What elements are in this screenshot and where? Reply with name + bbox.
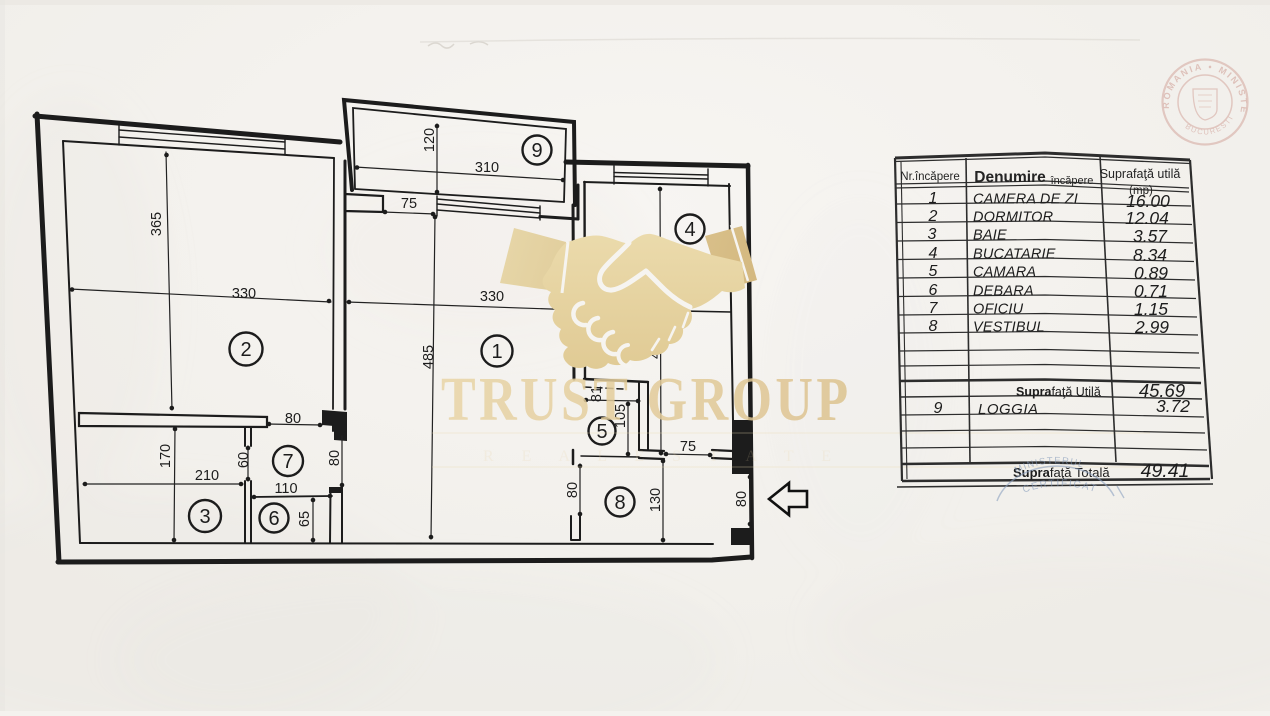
svg-text:310: 310	[475, 160, 499, 176]
svg-text:60: 60	[236, 452, 252, 468]
svg-text:3: 3	[928, 226, 937, 243]
svg-text:CAMERA DE ZI: CAMERA DE ZI	[973, 192, 1078, 208]
svg-text:încăpere: încăpere	[1050, 175, 1094, 187]
svg-text:2: 2	[240, 339, 251, 361]
svg-text:330: 330	[480, 289, 504, 305]
svg-text:3: 3	[199, 506, 210, 528]
svg-text:TRUST GROUP: TRUST GROUP	[441, 366, 852, 434]
svg-text:VESTIBUL: VESTIBUL	[973, 320, 1045, 336]
svg-text:0.71: 0.71	[1134, 281, 1168, 301]
svg-text:170: 170	[158, 444, 174, 468]
svg-text:2: 2	[928, 208, 938, 225]
svg-text:OFICIU: OFICIU	[973, 302, 1024, 318]
svg-text:9: 9	[531, 140, 542, 162]
svg-text:485: 485	[421, 345, 437, 369]
svg-text:210: 210	[195, 468, 219, 484]
svg-text:2.99: 2.99	[1134, 317, 1169, 337]
svg-text:DORMITOR: DORMITOR	[973, 210, 1054, 226]
svg-text:1: 1	[929, 190, 938, 207]
svg-text:Suprafaţă Utilă: Suprafaţă Utilă	[1016, 385, 1101, 399]
svg-text:8: 8	[929, 318, 938, 335]
svg-text:7: 7	[282, 451, 293, 473]
svg-text:6: 6	[268, 508, 279, 530]
svg-text:8: 8	[614, 492, 625, 514]
svg-text:80: 80	[327, 450, 343, 466]
svg-text:130: 130	[648, 488, 664, 512]
svg-text:6: 6	[929, 282, 938, 299]
svg-text:3.57: 3.57	[1133, 226, 1168, 246]
svg-text:CAMARA: CAMARA	[973, 265, 1036, 281]
svg-text:65: 65	[297, 511, 313, 527]
svg-text:1: 1	[491, 341, 502, 363]
svg-text:80: 80	[565, 482, 581, 498]
svg-text:4: 4	[929, 245, 938, 262]
svg-text:75: 75	[401, 196, 417, 212]
svg-text:1.15: 1.15	[1134, 299, 1168, 319]
svg-text:LOGGIA: LOGGIA	[978, 401, 1039, 418]
svg-text:12.04: 12.04	[1125, 208, 1169, 228]
svg-text:Denumire: Denumire	[974, 169, 1046, 186]
svg-text:0.89: 0.89	[1134, 263, 1168, 283]
svg-text:Nr.încăpere: Nr.încăpere	[900, 171, 959, 183]
svg-text:365: 365	[149, 212, 165, 236]
svg-text:9: 9	[934, 400, 943, 417]
svg-text:120: 120	[422, 128, 438, 152]
svg-text:BAIE: BAIE	[973, 228, 1007, 244]
svg-text:7: 7	[929, 300, 939, 317]
svg-text:49.41: 49.41	[1141, 460, 1190, 482]
svg-text:BUCATARIE: BUCATARIE	[973, 247, 1056, 263]
svg-text:5: 5	[929, 263, 938, 280]
svg-text:80: 80	[285, 411, 301, 427]
svg-text:Suprafaţă utilă: Suprafaţă utilă	[1100, 167, 1181, 181]
svg-text:8.34: 8.34	[1133, 245, 1167, 265]
svg-text:80: 80	[734, 491, 750, 507]
svg-text:DEBARA: DEBARA	[973, 284, 1034, 300]
svg-text:R E A L E S T A T E: R E A L E S T A T E	[483, 448, 843, 465]
svg-text:4: 4	[684, 219, 695, 241]
svg-text:330: 330	[232, 286, 256, 302]
svg-text:3.72: 3.72	[1156, 396, 1190, 416]
svg-text:110: 110	[274, 481, 297, 497]
